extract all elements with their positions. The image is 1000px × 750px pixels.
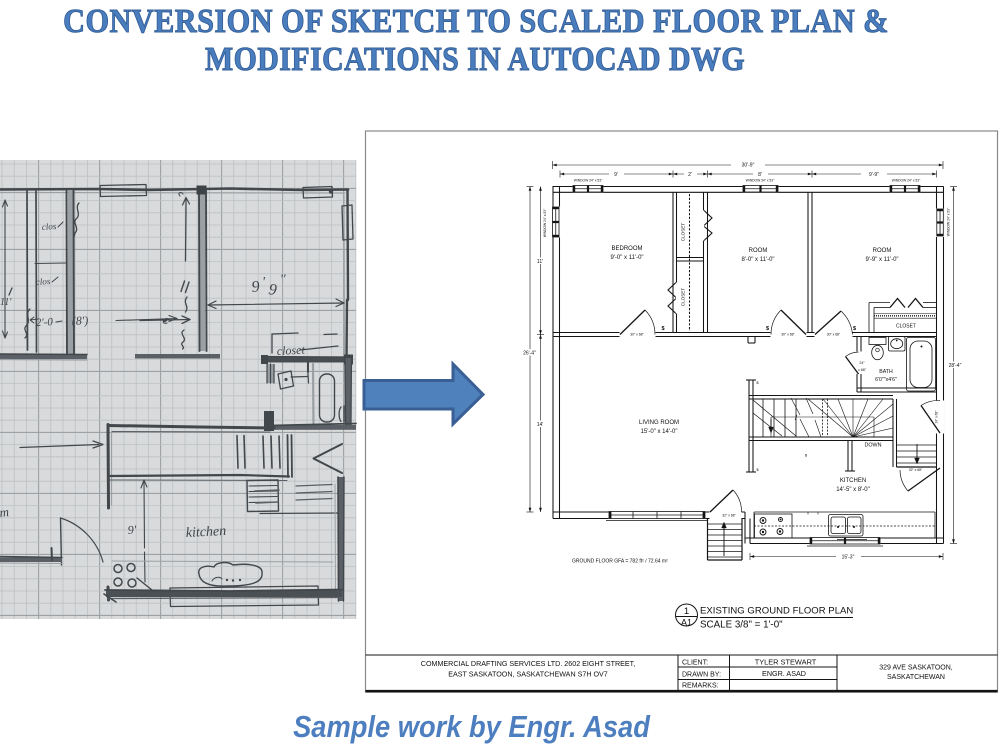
svg-text:DOWN: DOWN xyxy=(864,443,881,449)
svg-text:KITCHEN: KITCHEN xyxy=(840,478,866,484)
svg-text:8': 8' xyxy=(758,172,762,178)
svg-text:ROOM: ROOM xyxy=(749,248,768,254)
svg-text:14'-5" x 8'-0": 14'-5" x 8'-0" xyxy=(836,487,870,493)
svg-text:BATH: BATH xyxy=(879,369,893,375)
svg-text:clos: clos xyxy=(35,276,51,287)
svg-text:DRAWN BY:: DRAWN BY: xyxy=(682,672,721,679)
svg-text:CLOSET: CLOSET xyxy=(681,223,686,242)
svg-text:24" x 68": 24" x 68" xyxy=(935,411,939,424)
svg-text:30'-9": 30'-9" xyxy=(742,163,755,169)
svg-text:WINDOW 24" x 53": WINDOW 24" x 53" xyxy=(892,179,921,183)
svg-text:CLIENT:: CLIENT: xyxy=(682,660,708,667)
svg-text:14': 14' xyxy=(537,422,544,428)
svg-text:clos: clos xyxy=(41,221,57,232)
svg-text:9'-0" x 11'-0": 9'-0" x 11'-0" xyxy=(610,255,643,261)
svg-text:9'-9": 9'-9" xyxy=(869,172,879,178)
svg-text:WINDOW 24" x 53": WINDOW 24" x 53" xyxy=(543,208,547,237)
svg-text:24": 24" xyxy=(859,361,865,365)
svg-text:$: $ xyxy=(853,326,856,332)
svg-text:8'-0" x 11'-0": 8'-0" x 11'-0" xyxy=(741,257,774,263)
svg-text:COMMERCIAL DRAFTING SERVICES L: COMMERCIAL DRAFTING SERVICES LTD. 2602 E… xyxy=(421,660,635,668)
svg-text:ROOM: ROOM xyxy=(873,248,892,254)
svg-text:WINDOW 24" x 53": WINDOW 24" x 53" xyxy=(574,179,603,183)
svg-text:329 AVE SASKATOON,: 329 AVE SASKATOON, xyxy=(879,665,953,672)
svg-text:9': 9' xyxy=(614,172,618,178)
svg-text:32" x 68": 32" x 68" xyxy=(909,468,923,472)
svg-text:9': 9' xyxy=(127,522,137,537)
svg-text:11': 11' xyxy=(0,297,12,308)
svg-text:x 68": x 68" xyxy=(858,368,867,372)
svg-text:EAST SASKATOON, SASKATCHEWAN S: EAST SASKATOON, SASKATCHEWAN S7H OV7 xyxy=(448,671,608,679)
svg-text:$: $ xyxy=(661,326,664,332)
svg-text:11': 11' xyxy=(537,259,543,265)
svg-text:9'-9" x 11'-0": 9'-9" x 11'-0" xyxy=(865,257,898,263)
svg-text:32" x 68": 32" x 68" xyxy=(722,514,736,518)
svg-text:2': 2' xyxy=(688,172,692,178)
svg-text:28'-4": 28'-4" xyxy=(949,363,962,369)
svg-text:30" x 68": 30" x 68" xyxy=(781,333,795,337)
svg-text:TYLER STEWART: TYLER STEWART xyxy=(755,658,817,667)
svg-text:'': '' xyxy=(280,271,286,286)
svg-text:GROUND FLOOR GFA = 782 ft² / 7: GROUND FLOOR GFA = 782 ft² / 72.64 m² xyxy=(572,559,668,565)
svg-text:REMARKS:: REMARKS: xyxy=(682,683,719,690)
svg-text:1: 1 xyxy=(684,606,689,617)
svg-text:15'-3": 15'-3" xyxy=(842,555,855,561)
svg-text:6'0""x4'6": 6'0""x4'6" xyxy=(875,377,897,383)
svg-text:15'-0" x 14'-0": 15'-0" x 14'-0" xyxy=(641,429,678,435)
svg-text:A1: A1 xyxy=(681,618,692,628)
svg-text:LIVING ROOM: LIVING ROOM xyxy=(639,420,679,426)
svg-text:SASKATCHEWAN: SASKATCHEWAN xyxy=(887,674,945,681)
svg-text:30" x 68": 30" x 68" xyxy=(630,333,644,337)
svg-text:2'-0: 2'-0 xyxy=(36,316,54,329)
svg-text:9: 9 xyxy=(251,278,260,296)
svg-text:26'-4": 26'-4" xyxy=(523,351,536,357)
svg-text:SCALE 3/8" = 1'-0": SCALE 3/8" = 1'-0" xyxy=(700,620,783,631)
svg-text:30" x 68": 30" x 68" xyxy=(827,333,841,337)
svg-text:$: $ xyxy=(766,326,769,332)
svg-text:BEDROOM: BEDROOM xyxy=(611,246,642,252)
svg-text:EXISTING GROUND FLOOR PLAN: EXISTING GROUND FLOOR PLAN xyxy=(700,606,853,617)
svg-text:kitchen: kitchen xyxy=(185,524,226,541)
svg-text:CLOSET: CLOSET xyxy=(681,288,686,307)
svg-text:m: m xyxy=(0,504,10,520)
svg-text:ENGR. ASAD: ENGR. ASAD xyxy=(762,669,806,678)
svg-text:WINDOW 34" x 53": WINDOW 34" x 53" xyxy=(746,179,775,183)
svg-text:CLOSET: CLOSET xyxy=(896,324,916,330)
svg-text:(8'): (8') xyxy=(71,313,88,328)
svg-text:WINDOW 24" x 53": WINDOW 24" x 53" xyxy=(947,207,951,236)
